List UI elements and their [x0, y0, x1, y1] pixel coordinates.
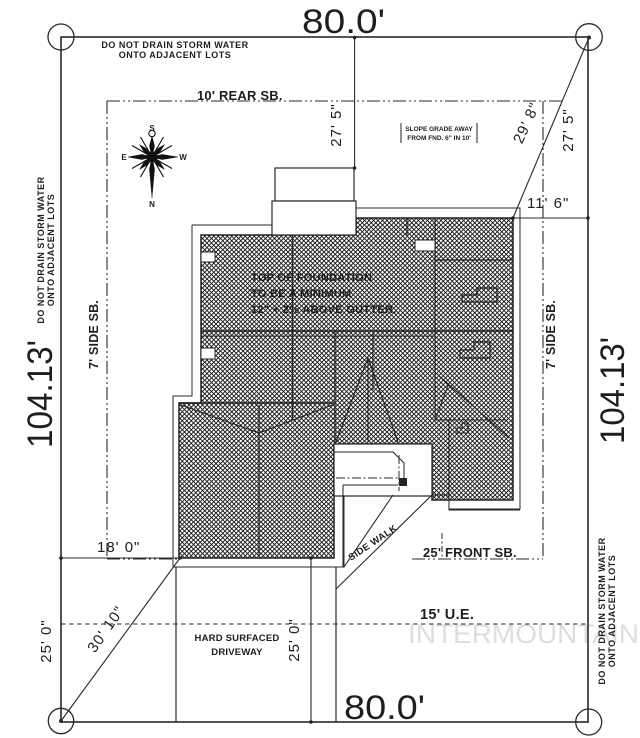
- svg-text:ONTO ADJACENT LOTS: ONTO ADJACENT LOTS: [119, 50, 232, 60]
- svg-text:18' 0": 18' 0": [97, 539, 140, 556]
- svg-text:7' SIDE SB.: 7' SIDE SB.: [544, 300, 558, 369]
- svg-text:27' 5": 27' 5": [560, 108, 577, 151]
- svg-text:ONTO ADJACENT LOTS: ONTO ADJACENT LOTS: [46, 194, 56, 307]
- svg-text:7' SIDE SB.: 7' SIDE SB.: [87, 300, 101, 369]
- svg-text:DO NOT DRAIN STORM WATER: DO NOT DRAIN STORM WATER: [597, 537, 607, 684]
- svg-text:12" + 2% ABOVE GUTTER.: 12" + 2% ABOVE GUTTER.: [251, 304, 397, 316]
- svg-text:W: W: [179, 153, 187, 162]
- svg-text:25' 0": 25' 0": [286, 618, 303, 661]
- svg-text:FROM FND. 6" IN 10': FROM FND. 6" IN 10': [407, 135, 471, 142]
- svg-text:TOP OF FOUNDATION: TOP OF FOUNDATION: [251, 272, 372, 284]
- svg-text:E: E: [121, 153, 127, 162]
- svg-text:SLOPE GRADE AWAY: SLOPE GRADE AWAY: [405, 126, 473, 133]
- svg-text:11' 6": 11' 6": [527, 195, 569, 212]
- svg-text:80.0': 80.0': [302, 3, 385, 41]
- svg-text:80.0': 80.0': [344, 689, 425, 727]
- svg-text:104.13': 104.13': [594, 337, 632, 444]
- svg-text:HARD SURFACED: HARD SURFACED: [195, 633, 280, 644]
- svg-text:25' 0": 25' 0": [38, 619, 55, 662]
- svg-text:10' REAR SB.: 10' REAR SB.: [197, 88, 283, 103]
- svg-text:DO NOT DRAIN STORM WATER: DO NOT DRAIN STORM WATER: [36, 176, 46, 323]
- svg-text:27' 5": 27' 5": [328, 103, 345, 146]
- svg-text:104.13': 104.13': [21, 340, 60, 448]
- svg-text:TO BE A MINIMUM: TO BE A MINIMUM: [251, 288, 352, 300]
- svg-text:15' U.E.: 15' U.E.: [420, 607, 474, 623]
- svg-text:DRIVEWAY: DRIVEWAY: [211, 647, 263, 658]
- svg-text:DO NOT DRAIN STORM WATER: DO NOT DRAIN STORM WATER: [101, 40, 248, 50]
- svg-text:N: N: [149, 200, 155, 209]
- svg-text:ONTO ADJACENT LOTS: ONTO ADJACENT LOTS: [607, 555, 617, 668]
- svg-text:25' FRONT SB.: 25' FRONT SB.: [423, 545, 517, 560]
- svg-text:S: S: [149, 124, 155, 133]
